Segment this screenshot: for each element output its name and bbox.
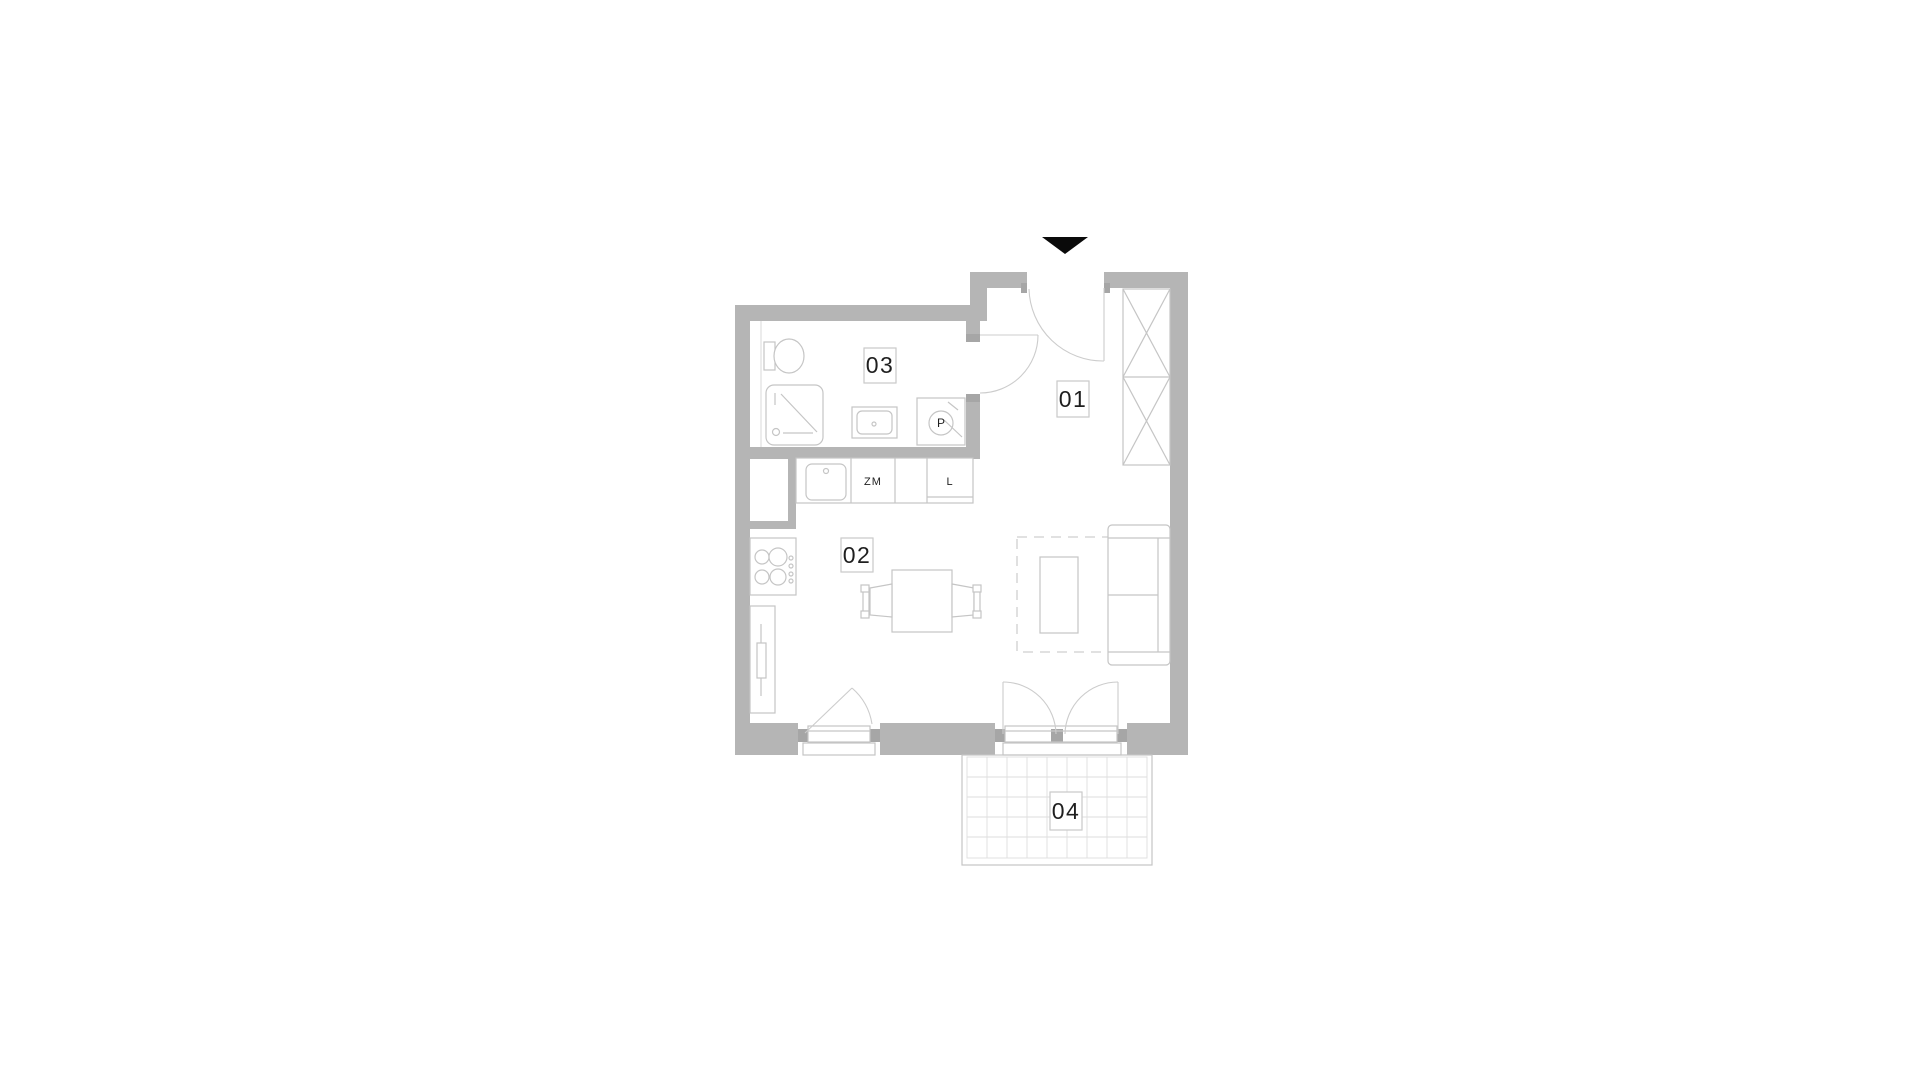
bathroom-door-jamb-bottom xyxy=(966,394,980,402)
dining-area xyxy=(861,570,981,632)
dishwasher-label: ZM xyxy=(864,476,882,488)
chair-left-cap-bottom xyxy=(861,611,869,618)
bathroom-door-jamb-top xyxy=(966,334,980,342)
floor-plan-drawing: P ZM L xyxy=(0,0,1920,1080)
balcony-door-sill xyxy=(1003,743,1121,755)
bathroom-door-arc xyxy=(980,335,1038,393)
wall-bathroom-door-stub-lower xyxy=(966,402,980,447)
entry-door-jamb-right xyxy=(1104,283,1110,293)
wall-bathroom-top xyxy=(735,305,987,321)
wall-bottom-middle-segment xyxy=(880,723,995,755)
entry-door-arc xyxy=(1029,289,1104,361)
room-02-label: 02 xyxy=(843,542,872,568)
window-casement-arc xyxy=(852,688,872,724)
wall-left xyxy=(735,305,750,755)
chair-left-seat xyxy=(870,584,892,617)
wall-top-left-of-entry xyxy=(970,272,1027,288)
wall-bathroom-door-stub-upper xyxy=(966,321,980,334)
walls xyxy=(735,272,1188,755)
bed-zone-dashed-outline xyxy=(1017,537,1112,652)
wall-shaft-bottom xyxy=(750,521,796,529)
wall-bottom-right-segment xyxy=(1127,723,1188,755)
chair-left-cap-top xyxy=(861,585,869,592)
chair-right-seat xyxy=(952,584,974,617)
fridge-label: L xyxy=(946,476,953,488)
window-jamb-right xyxy=(870,729,880,742)
dining-table xyxy=(892,570,952,632)
wall-bathroom-bottom xyxy=(750,447,980,459)
wall-bottom-left-segment xyxy=(735,723,798,755)
room-04-label: 04 xyxy=(1052,798,1081,824)
chair-right-cap-bottom xyxy=(973,611,981,618)
toilet-tank xyxy=(764,342,775,370)
jambs xyxy=(798,283,1127,742)
toilet-bowl xyxy=(774,339,804,373)
window-frame xyxy=(808,726,870,742)
chair-right-cap-top xyxy=(973,585,981,592)
living-area xyxy=(1017,289,1170,665)
washing-machine-label: P xyxy=(937,416,945,430)
entrance-arrow-icon xyxy=(1042,237,1088,254)
wall-shaft-right xyxy=(788,459,796,529)
room-03-label: 03 xyxy=(866,352,895,378)
coffee-table xyxy=(1040,557,1078,633)
room-01-label: 01 xyxy=(1059,386,1088,412)
floor-plan-page: P ZM L xyxy=(0,0,1920,1080)
window-sill xyxy=(803,743,875,755)
door-swings xyxy=(805,288,1118,734)
bathroom: P xyxy=(761,321,965,447)
wall-right xyxy=(1170,272,1188,755)
radiator xyxy=(750,606,775,713)
entry-door-jamb-left xyxy=(1021,283,1027,293)
